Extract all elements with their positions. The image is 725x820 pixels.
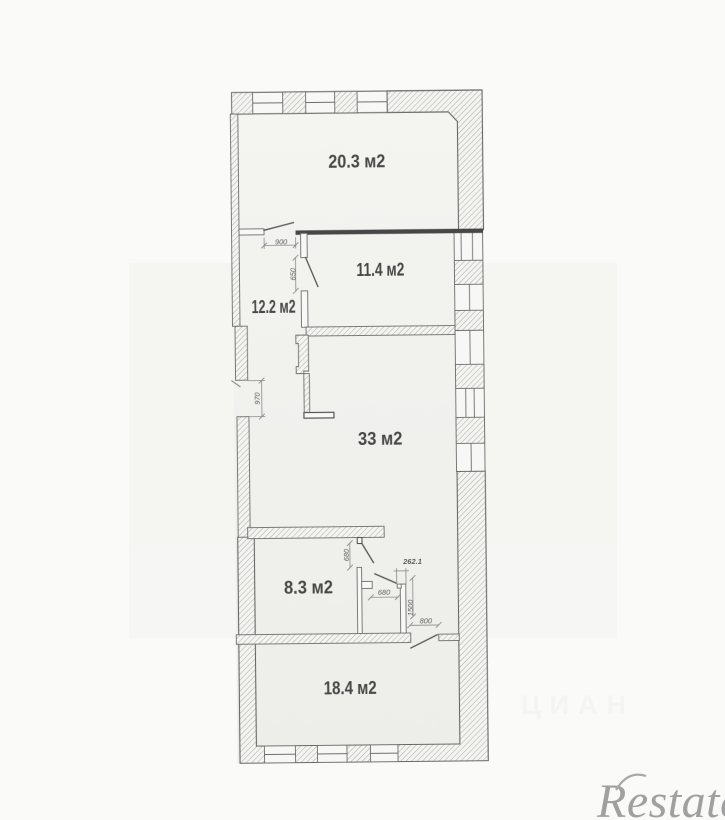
svg-text:8.3 м2: 8.3 м2: [284, 577, 333, 598]
svg-text:Restate: Restate: [596, 775, 725, 820]
svg-text:970: 970: [253, 391, 262, 404]
svg-text:262.1: 262.1: [402, 557, 422, 566]
svg-text:12.2 м2: 12.2 м2: [252, 297, 296, 317]
svg-text:20.3 м2: 20.3 м2: [328, 151, 385, 172]
svg-text:1500: 1500: [406, 599, 415, 616]
svg-text:680: 680: [378, 587, 391, 596]
svg-text:33 м2: 33 м2: [358, 429, 403, 449]
svg-text:650: 650: [288, 267, 297, 280]
svg-text:11.4 м2: 11.4 м2: [356, 260, 404, 281]
svg-text:680: 680: [342, 548, 351, 561]
svg-text:18.4 м2: 18.4 м2: [324, 678, 377, 699]
svg-text:ЦИАН: ЦИАН: [521, 690, 635, 720]
svg-text:900: 900: [275, 237, 288, 246]
svg-text:800: 800: [420, 616, 433, 625]
